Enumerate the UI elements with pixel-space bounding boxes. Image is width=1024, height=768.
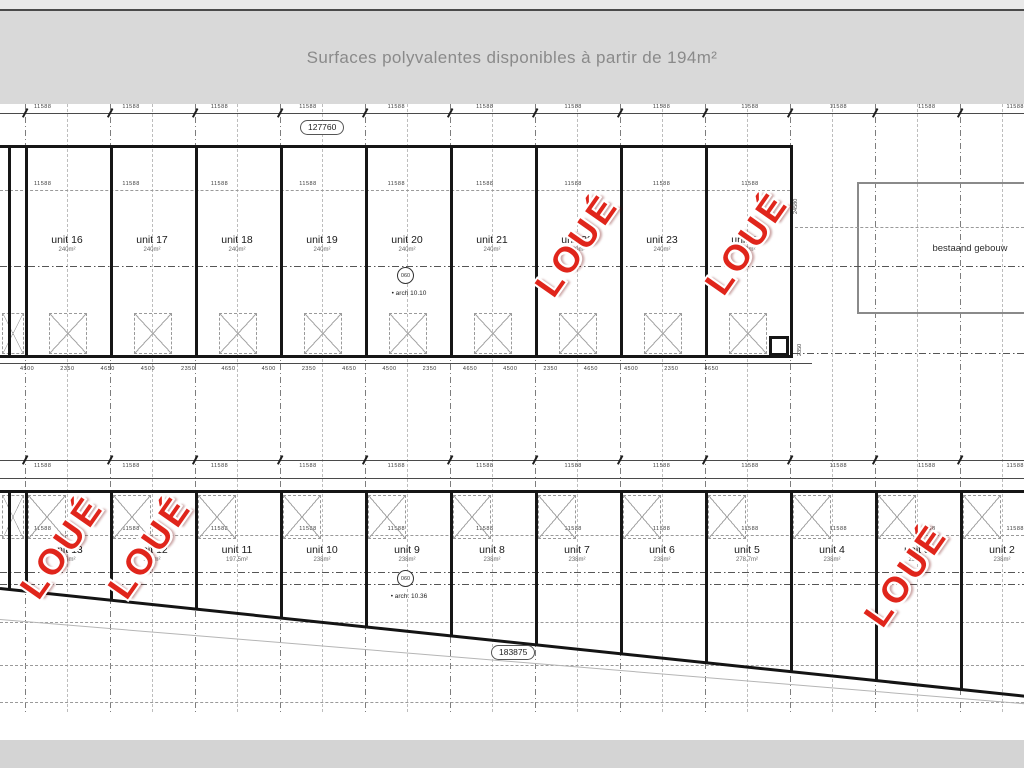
unit-number: unit 5 [705, 544, 789, 556]
unit-centerline [0, 266, 1024, 267]
hatch-box [644, 313, 682, 354]
unit-area: 238m² [790, 557, 874, 563]
hatch-box [134, 313, 172, 354]
hatch-box [368, 495, 406, 539]
hatch-box [389, 313, 427, 354]
unit-label-11: unit 11 197.5m² [195, 544, 279, 563]
corner-detail [769, 336, 789, 356]
header-band: Surfaces polyvalentes disponibles à part… [0, 11, 1024, 104]
dimension-numbers: 11588 11588 11588 11588 11588 11588 1158… [34, 463, 1024, 469]
unit-wall [0, 355, 793, 358]
unit-number: unit 11 [195, 544, 279, 556]
grid-line [152, 104, 153, 712]
unit-wall [705, 490, 708, 662]
unit-label-19: unit 19 240m² [280, 234, 364, 253]
unit-wall [8, 490, 11, 589]
unit-label-4: unit 4 238m² [790, 544, 874, 563]
footer-band [0, 740, 1024, 768]
hatch-box [2, 313, 24, 354]
terrain-grid-line [0, 702, 1024, 703]
site-boundary-line [0, 619, 1024, 705]
arch-note: • arch: 10.36 [374, 593, 444, 600]
terrain-grid-line [0, 622, 1024, 623]
hatch-box [49, 313, 87, 354]
unit-centerline [0, 584, 1024, 585]
unit-wall [790, 145, 793, 358]
unit-number: unit 8 [450, 544, 534, 556]
unit-area: 240m² [620, 247, 704, 253]
hatch-box [2, 495, 24, 539]
grid-line [237, 104, 238, 712]
unit-area: 240m² [195, 247, 279, 253]
unit-wall [790, 490, 793, 671]
unit-wall [8, 145, 11, 355]
unit-number: unit 18 [195, 234, 279, 246]
dimension-line [0, 363, 812, 364]
unit-number: unit 9 [365, 544, 449, 556]
unit-label-9: unit 9 238m² [365, 544, 449, 563]
unit-area: 238m² [535, 557, 619, 563]
page-title: Surfaces polyvalentes disponibles à part… [307, 48, 718, 68]
unit-area: 278.7m² [705, 557, 789, 563]
hatch-box [198, 495, 236, 539]
unit-area: 238m² [960, 557, 1024, 563]
unit-number: unit 10 [280, 544, 364, 556]
unit-wall [620, 490, 623, 653]
unit-label-2: unit 2 238m² [960, 544, 1024, 563]
unit-label-18: unit 18 240m² [195, 234, 279, 253]
unit-area: 238m² [620, 557, 704, 563]
hatch-box [283, 495, 321, 539]
unit-wall [0, 490, 1024, 493]
dimension-line [0, 113, 1024, 114]
level-marker-circle: 060 [397, 267, 414, 284]
unit-number: unit 19 [280, 234, 364, 246]
unit-number: unit 21 [450, 234, 534, 246]
unit-wall [535, 490, 538, 644]
unit-area: 238m² [365, 557, 449, 563]
unit-number: unit 2 [960, 544, 1024, 556]
wall-centerline [793, 353, 1024, 354]
unit-label-20: unit 20 240m² [365, 234, 449, 253]
unit-number: unit 17 [110, 234, 194, 246]
unit-area: 240m² [450, 247, 534, 253]
screenshot-root: Surfaces polyvalentes disponibles à part… [0, 0, 1024, 768]
unit-area: 197.5m² [195, 557, 279, 563]
header-top-strip [0, 0, 1024, 9]
unit-number: unit 6 [620, 544, 704, 556]
unit-number: unit 7 [535, 544, 619, 556]
arch-note: • arch 10.10 [374, 290, 444, 297]
grid-line [407, 104, 408, 712]
hatch-box [453, 495, 491, 539]
hatch-box [708, 495, 746, 539]
side-dimension: 2350 [797, 344, 803, 356]
unit-label-6: unit 6 238m² [620, 544, 704, 563]
terrain-grid-line [0, 665, 1024, 666]
grid-line [795, 227, 1024, 228]
unit-label-16: unit 16 240m² [25, 234, 109, 253]
grid-line [662, 104, 663, 712]
unit-label-10: unit 10 238m² [280, 544, 364, 563]
dimension-line [0, 478, 1024, 479]
unit-label-17: unit 17 240m² [110, 234, 194, 253]
mezzanine-line [0, 190, 790, 191]
grid-line [832, 104, 833, 712]
unit-label-21: unit 21 240m² [450, 234, 534, 253]
overall-dimension-top: 127760 [300, 120, 344, 135]
dimension-numbers: 4500 2350 4650 4500 2350 4650 4500 2350 … [20, 366, 810, 372]
unit-number: unit 4 [790, 544, 874, 556]
unit-label-23: unit 23 240m² [620, 234, 704, 253]
hatch-box [623, 495, 661, 539]
unit-area: 240m² [25, 247, 109, 253]
unit-number: unit 23 [620, 234, 704, 246]
unit-area: 238m² [450, 557, 534, 563]
unit-wall [960, 490, 963, 689]
level-marker-circle: 060 [397, 570, 414, 587]
hatch-box [559, 313, 597, 354]
unit-number: unit 16 [25, 234, 109, 246]
unit-area: 240m² [365, 247, 449, 253]
unit-label-7: unit 7 238m² [535, 544, 619, 563]
floor-plan: bestaand gebouw 11588 11588 11588 11588 … [0, 104, 1024, 740]
hatch-box [538, 495, 576, 539]
grid-line [747, 104, 748, 712]
hatch-box [474, 313, 512, 354]
hatch-box [729, 313, 767, 354]
unit-area: 240m² [110, 247, 194, 253]
grid-line [577, 104, 578, 712]
overall-dimension-bottom: 183875 [491, 645, 535, 660]
hatch-box [793, 495, 831, 539]
unit-area: 240m² [280, 247, 364, 253]
hatch-box [304, 313, 342, 354]
unit-label-8: unit 8 238m² [450, 544, 534, 563]
hatch-box [963, 495, 1001, 539]
grid-line [67, 104, 68, 712]
grid-line [492, 104, 493, 712]
dimension-numbers: 11588 11588 11588 11588 11588 11588 1158… [34, 181, 784, 187]
hatch-box [219, 313, 257, 354]
unit-number: unit 20 [365, 234, 449, 246]
unit-area: 238m² [280, 557, 364, 563]
dimension-line [0, 460, 1024, 461]
existing-building-label: bestaand gebouw [880, 243, 1024, 254]
unit-label-5: unit 5 278.7m² [705, 544, 789, 563]
unit-wall [0, 145, 793, 148]
